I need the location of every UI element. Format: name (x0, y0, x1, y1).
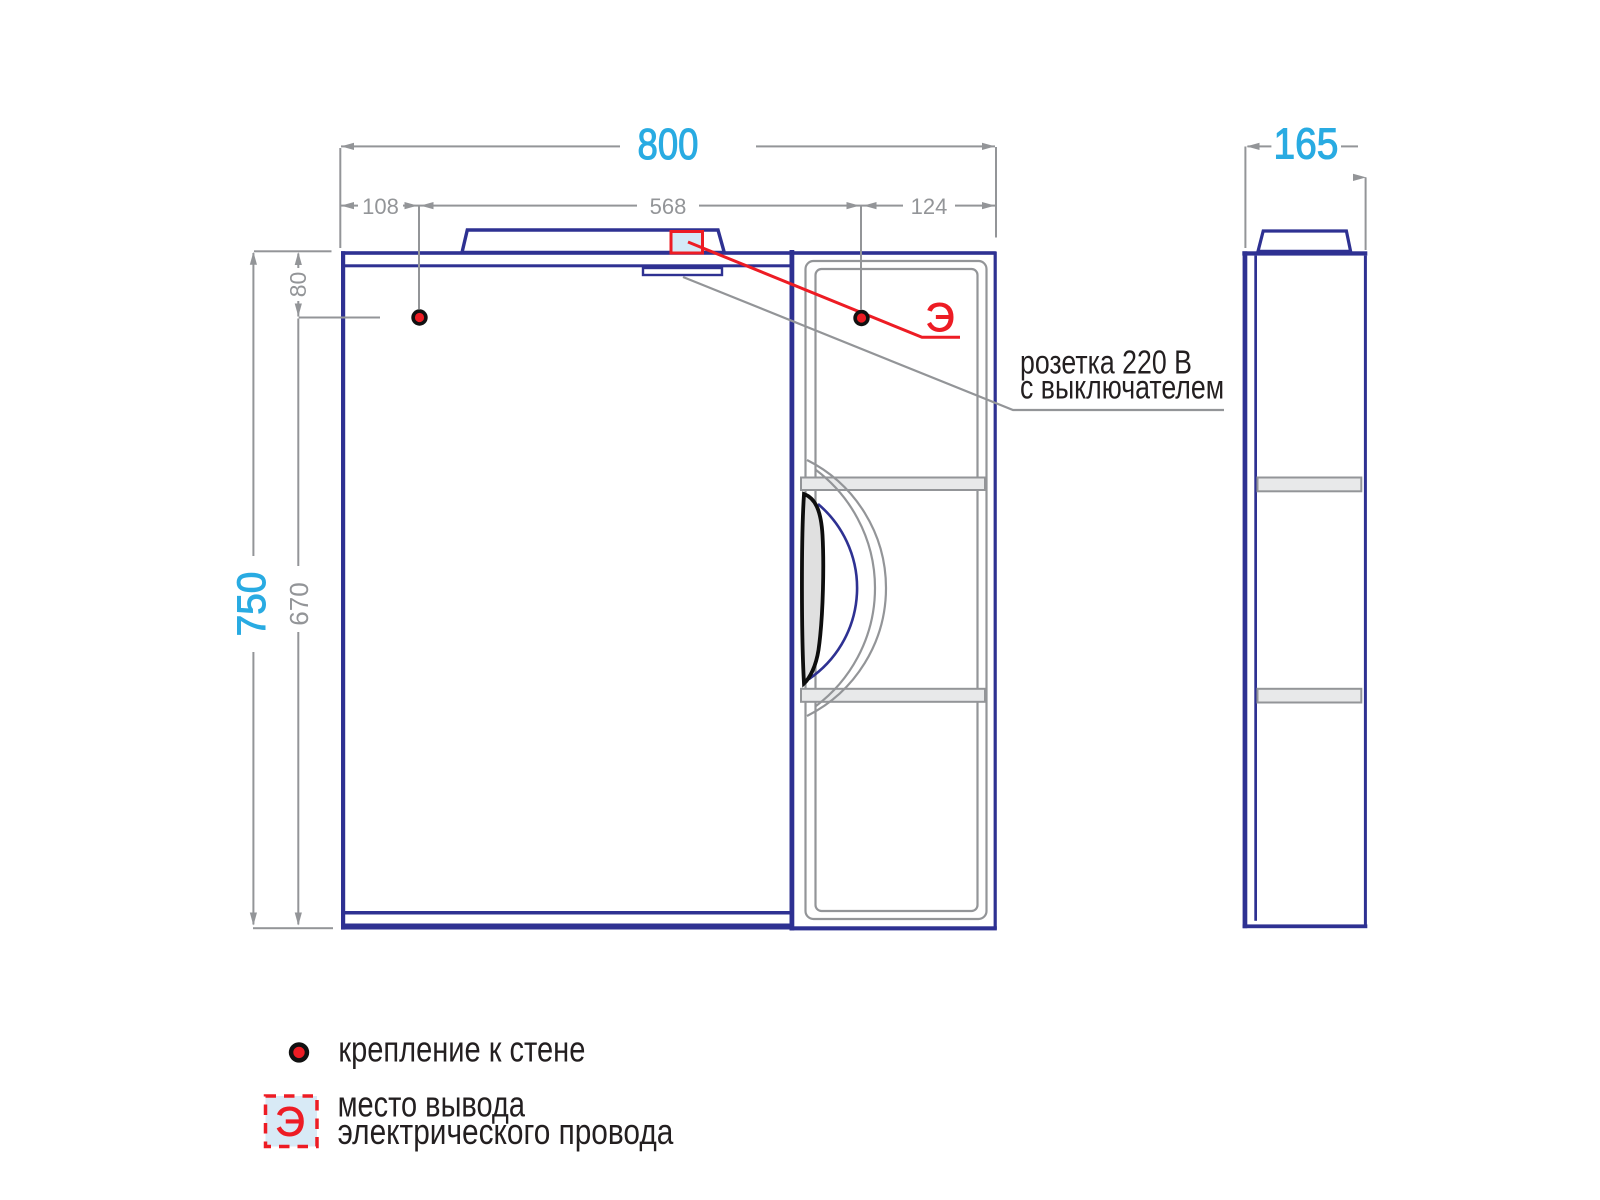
svg-text:670: 670 (284, 582, 314, 625)
svg-text:800: 800 (638, 119, 699, 169)
svg-text:568: 568 (650, 194, 687, 219)
svg-text:80: 80 (285, 272, 311, 298)
svg-text:750: 750 (229, 572, 274, 637)
svg-text:с выключателем: с выключателем (1020, 370, 1224, 406)
svg-text:108: 108 (362, 194, 399, 219)
svg-text:Э: Э (926, 296, 955, 340)
svg-text:электрического провода: электрического провода (338, 1112, 674, 1152)
svg-text:крепление к стене: крепление к стене (338, 1028, 585, 1069)
svg-text:165: 165 (1274, 118, 1339, 168)
svg-text:124: 124 (911, 194, 948, 219)
svg-text:Э: Э (275, 1099, 304, 1145)
